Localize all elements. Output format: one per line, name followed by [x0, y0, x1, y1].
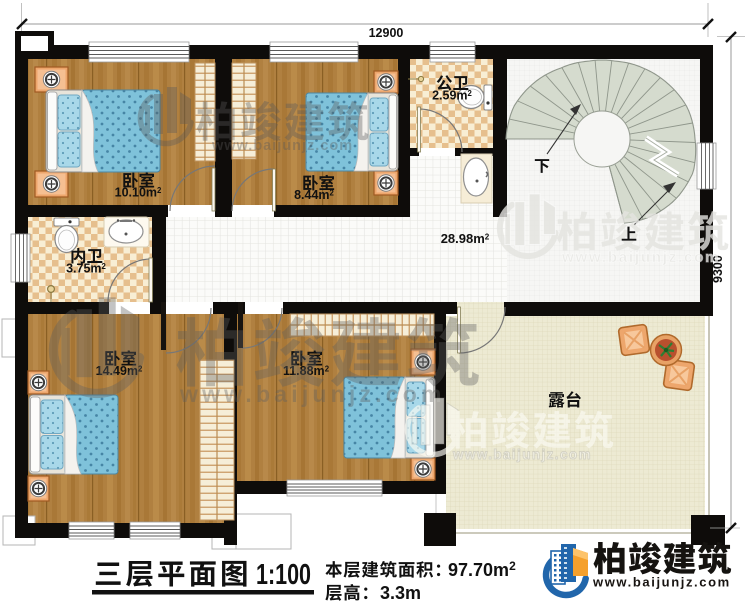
- svg-text:28.98m2: 28.98m2: [441, 231, 490, 246]
- svg-text:www.baijunjz.com: www.baijunjz.com: [179, 381, 446, 407]
- svg-text:www.baijunjz.com: www.baijunjz.com: [561, 249, 720, 266]
- svg-text:www.baijunjz.com: www.baijunjz.com: [211, 138, 353, 154]
- svg-text:www.baijunjz.com: www.baijunjz.com: [592, 575, 731, 590]
- svg-text:10.10m2: 10.10m2: [115, 186, 162, 200]
- svg-text:12900: 12900: [369, 26, 404, 40]
- svg-text:3.75m2: 3.75m2: [66, 262, 106, 276]
- svg-text:97.70m2: 97.70m2: [448, 559, 516, 580]
- svg-text:2.59m2: 2.59m2: [432, 89, 472, 103]
- svg-text:1:100: 1:100: [256, 559, 311, 591]
- svg-text:8.44m2: 8.44m2: [294, 188, 334, 202]
- svg-text:3.3m: 3.3m: [380, 583, 421, 603]
- svg-text:www.baijunjz.com: www.baijunjz.com: [452, 447, 592, 462]
